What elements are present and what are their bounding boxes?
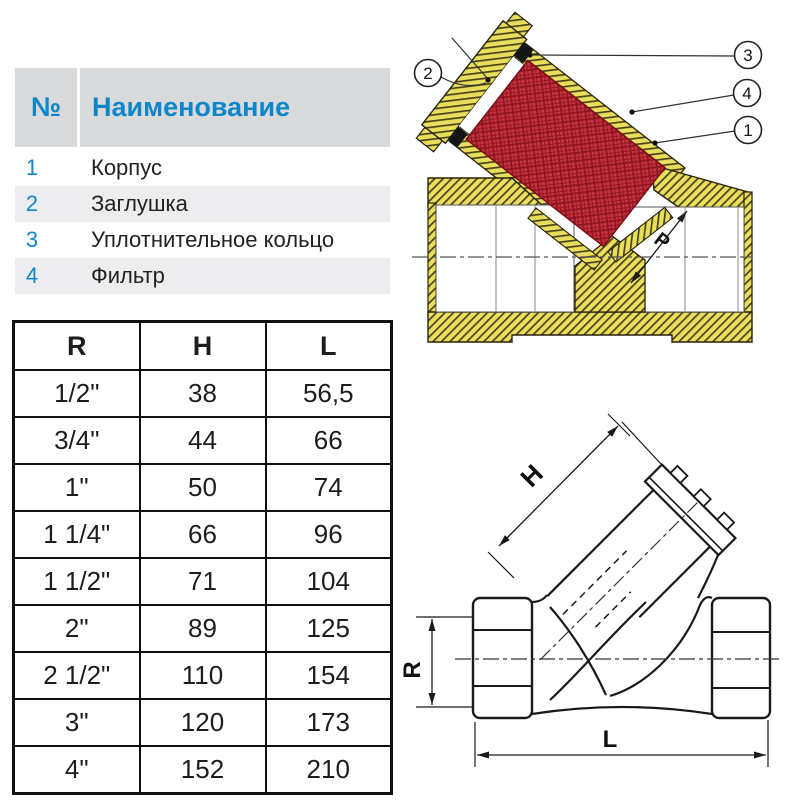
dimensions-cell: 66 (266, 417, 392, 464)
dimensions-header-row: RHL (14, 322, 392, 371)
dimensions-row: 3/4"4466 (14, 417, 392, 464)
dimensions-cell: 104 (266, 558, 392, 605)
dimensions-row: 1 1/2"71104 (14, 558, 392, 605)
branch-outline (504, 457, 743, 696)
parts-row: 3Уплотнительное кольцо (15, 222, 390, 258)
part-name: Корпус (91, 155, 162, 181)
part-name: Уплотнительное кольцо (91, 227, 334, 253)
l-label: L (603, 726, 618, 753)
dimensions-cell: 125 (266, 605, 392, 652)
callout-body: 1 (735, 117, 762, 144)
svg-text:1: 1 (743, 121, 752, 140)
dimensions-row: 3"120173 (14, 699, 392, 746)
r-dimension: R (400, 617, 472, 707)
svg-text:2: 2 (423, 64, 432, 83)
dimensions-cell: 2 1/2" (14, 652, 140, 699)
parts-table-rows: 1Корпус2Заглушка3Уплотнительное кольцо4Ф… (15, 150, 390, 294)
dimensions-column-header: L (266, 322, 392, 371)
dimensions-cell: 1 1/2" (14, 558, 140, 605)
dimensions-cell: 74 (266, 464, 392, 511)
parts-table-header: № Наименование (15, 68, 390, 147)
dimensions-row: 1 1/4"6696 (14, 511, 392, 558)
dimensions-cell: 210 (266, 746, 392, 794)
dimensions-cell: 89 (140, 605, 266, 652)
catalog-page: № Наименование 1Корпус2Заглушка3Уплотнит… (0, 0, 800, 800)
part-number: 4 (15, 263, 49, 289)
callout-plug: 2 (415, 60, 442, 87)
dimensions-cell: 110 (140, 652, 266, 699)
section-drawing: P 2 3 4 1 (400, 0, 800, 360)
part-number: 1 (15, 155, 49, 181)
dimensions-cell: 154 (266, 652, 392, 699)
callout-sealing-ring: 3 (735, 42, 762, 69)
outline-drawing: H R L (400, 390, 800, 800)
dimensions-row: 1"5074 (14, 464, 392, 511)
parts-row: 1Корпус (15, 150, 390, 186)
dimensions-cell: 66 (140, 511, 266, 558)
parts-header-number: № (15, 68, 77, 147)
dimensions-cell: 56,5 (266, 370, 392, 417)
body-outline (532, 555, 718, 714)
dimensions-column-header: H (140, 322, 266, 371)
dimensions-row: 2"89125 (14, 605, 392, 652)
dimensions-cell: 38 (140, 370, 266, 417)
dimensions-cell: 2" (14, 605, 140, 652)
r-label: R (400, 661, 426, 678)
right-hex-nut (712, 598, 770, 718)
dimensions-cell: 1/2" (14, 370, 140, 417)
svg-text:3: 3 (743, 46, 752, 65)
dimensions-cell: 96 (266, 511, 392, 558)
callout-filter: 4 (734, 80, 761, 107)
parts-row: 4Фильтр (15, 258, 390, 294)
h-dimension: H (488, 414, 662, 578)
dimensions-cell: 4" (14, 746, 140, 794)
part-number: 3 (15, 227, 49, 253)
dimensions-column-header: R (14, 322, 140, 371)
dimensions-cell: 3" (14, 699, 140, 746)
dimensions-row: 1/2"3856,5 (14, 370, 392, 417)
svg-text:4: 4 (742, 84, 751, 103)
part-name: Заглушка (91, 191, 188, 217)
h-label: H (514, 458, 548, 492)
dimensions-cell: 3/4" (14, 417, 140, 464)
dimensions-cell: 173 (266, 699, 392, 746)
part-number: 2 (15, 191, 49, 217)
l-dimension: L (475, 720, 768, 767)
dimensions-cell: 50 (140, 464, 266, 511)
dimensions-row: 2 1/2"110154 (14, 652, 392, 699)
dimensions-table: RHL 1/2"3856,53/4"44661"50741 1/4"66961 … (12, 320, 393, 795)
dimensions-cell: 71 (140, 558, 266, 605)
left-hex-nut (473, 598, 532, 718)
dimensions-cell: 44 (140, 417, 266, 464)
dimensions-cell: 1 1/4" (14, 511, 140, 558)
dimensions-row: 4"152210 (14, 746, 392, 794)
dimensions-cell: 1" (14, 464, 140, 511)
parts-header-name: Наименование (80, 68, 390, 147)
part-name: Фильтр (91, 263, 165, 289)
dimensions-cell: 120 (140, 699, 266, 746)
parts-row: 2Заглушка (15, 186, 390, 222)
dimensions-cell: 152 (140, 746, 266, 794)
